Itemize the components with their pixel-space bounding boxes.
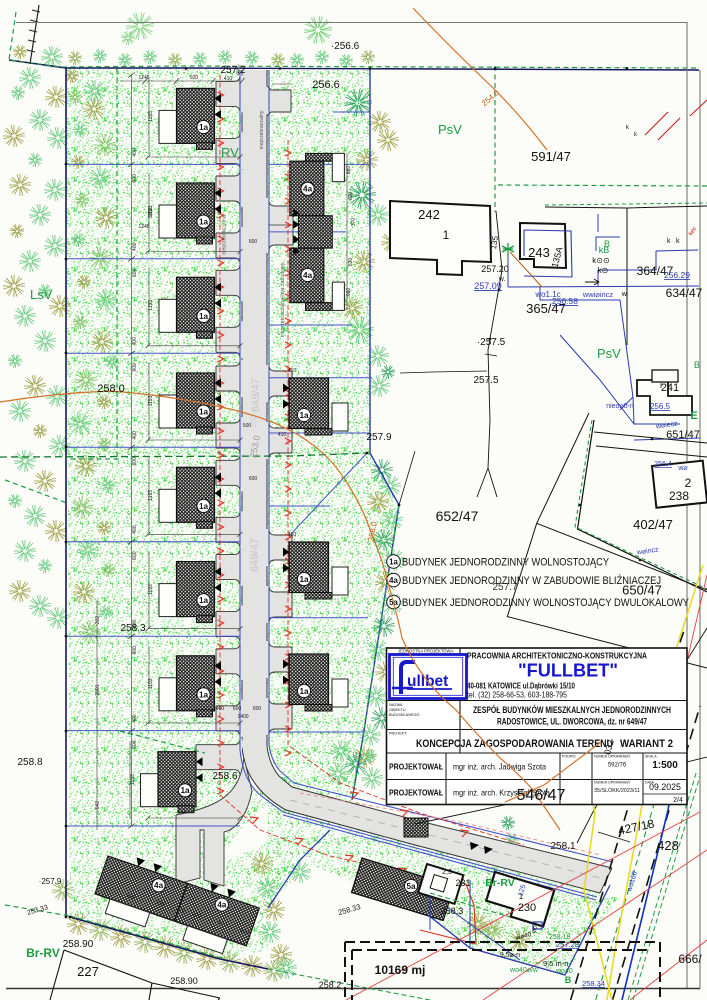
svg-text:BUDYNEK JEDNORODZINNY WOLNOSTO: BUDYNEK JEDNORODZINNY WOLNOSTOJĄCY DWULO… <box>402 597 689 609</box>
svg-text:258.34: 258.34 <box>582 979 605 988</box>
svg-text:tel. (32) 258-66-53, 603-188-7: tel. (32) 258-66-53, 603-188-795 <box>467 691 568 700</box>
svg-text:4a: 4a <box>389 576 398 585</box>
svg-text:256.29: 256.29 <box>664 270 690 280</box>
svg-text:1193: 1193 <box>130 774 136 785</box>
svg-text:243: 243 <box>528 245 550 260</box>
svg-text:1193: 1193 <box>148 584 154 595</box>
svg-text:600: 600 <box>132 551 138 560</box>
svg-text:9,5⌀-n: 9,5⌀-n <box>500 952 520 959</box>
svg-text:mgr inż. arch. Jadwiga Szota: mgr inż. arch. Jadwiga Szota <box>453 763 546 772</box>
svg-text:257.5: 257.5 <box>473 375 498 386</box>
svg-text:w⌀: w⌀ <box>677 465 687 472</box>
svg-text:410: 410 <box>288 368 297 374</box>
svg-text:258.90: 258.90 <box>170 976 198 986</box>
svg-text:400: 400 <box>132 525 138 534</box>
svg-text:546/47: 546/47 <box>517 787 566 804</box>
svg-text:231: 231 <box>455 878 470 888</box>
svg-text:660: 660 <box>346 288 352 297</box>
svg-text:40-081 KATOWICE ul.Dąbrówki 15: 40-081 KATOWICE ul.Dąbrówki 15/10 <box>467 682 576 691</box>
svg-text:302: 302 <box>95 616 101 625</box>
svg-text:"FULLBET": "FULLBET" <box>518 660 618 681</box>
svg-text:1a: 1a <box>299 687 309 696</box>
svg-text:592/76: 592/76 <box>608 763 627 769</box>
svg-text:257.09: 257.09 <box>474 281 502 291</box>
svg-text:258.3: 258.3 <box>120 623 145 634</box>
svg-text:NUMER UPRAWNIEŃ: NUMER UPRAWNIEŃ <box>594 781 630 785</box>
svg-text:nieprzekraczalny: nieprzekraczalny <box>259 110 265 149</box>
svg-text:241: 241 <box>661 382 679 394</box>
svg-text:i: i <box>660 380 662 390</box>
svg-text:PsV: PsV <box>438 122 462 137</box>
svg-text:ZESPÓŁ BUDYNKÓW MIESZKALNYCH J: ZESPÓŁ BUDYNKÓW MIESZKALNYCH JEDNORODZIN… <box>473 704 671 715</box>
svg-text:B: B <box>694 360 700 370</box>
svg-text:500: 500 <box>243 423 252 429</box>
svg-text:·256.6: ·256.6 <box>331 41 360 52</box>
svg-text:k⊙⊙: k⊙⊙ <box>592 256 609 265</box>
svg-text:35/SLOKK/2023/11: 35/SLOKK/2023/11 <box>594 788 640 794</box>
svg-text:10169 mj: 10169 mj <box>375 963 426 977</box>
svg-text:RADOSTOWICE, UL. DWORCOWA, dz.: RADOSTOWICE, UL. DWORCOWA, dz. nr 649/47 <box>497 717 647 727</box>
svg-text:k⊙: k⊙ <box>598 266 609 275</box>
svg-text:227: 227 <box>77 964 99 979</box>
svg-text:·257.9: ·257.9 <box>39 877 62 886</box>
svg-text:242: 242 <box>418 207 440 222</box>
svg-text:257.7: 257.7 <box>492 582 517 593</box>
svg-text:591/47: 591/47 <box>531 149 571 164</box>
svg-text:Br-RV: Br-RV <box>485 877 515 889</box>
svg-text:PODPIS: PODPIS <box>562 755 576 759</box>
svg-text:1a: 1a <box>199 596 209 605</box>
svg-text:Br-RV: Br-RV <box>26 946 60 960</box>
svg-text:256.4: 256.4 <box>654 461 672 468</box>
svg-text:400: 400 <box>132 431 138 440</box>
svg-text:256.58: 256.58 <box>552 296 578 306</box>
svg-text:600: 600 <box>233 706 242 712</box>
svg-text:666/: 666/ <box>678 952 702 966</box>
svg-text:258.90: 258.90 <box>63 939 94 950</box>
svg-text:370: 370 <box>351 218 357 227</box>
svg-text:09.2025: 09.2025 <box>649 782 681 792</box>
svg-text:2,3: 2,3 <box>442 869 452 876</box>
svg-text:600: 600 <box>253 706 262 712</box>
svg-text:RV: RV <box>221 145 239 160</box>
svg-text:2001: 2001 <box>95 684 101 695</box>
svg-text:1a: 1a <box>199 502 209 511</box>
svg-text:SKALA: SKALA <box>645 755 657 759</box>
svg-text:1193: 1193 <box>148 300 154 311</box>
svg-text:651/47: 651/47 <box>666 429 700 441</box>
svg-text:1a: 1a <box>180 786 190 795</box>
svg-text:634/47: 634/47 <box>666 286 703 300</box>
svg-text:PROJEKT:: PROJEKT: <box>389 732 407 736</box>
svg-text:nieo⌀0-n: nieo⌀0-n <box>606 403 634 410</box>
svg-text:620: 620 <box>348 258 354 267</box>
svg-text:600: 600 <box>132 740 138 749</box>
svg-text:600: 600 <box>132 174 138 183</box>
svg-text:wo40: wo40 <box>555 968 573 975</box>
svg-text:w.: w. <box>621 291 629 298</box>
svg-text:649/47: 649/47 <box>249 538 261 572</box>
svg-text:k: k <box>667 238 671 245</box>
svg-text:NUMER UPRAWNIEŃ: NUMER UPRAWNIEŃ <box>594 755 630 759</box>
svg-text:542: 542 <box>95 801 101 810</box>
svg-text:400: 400 <box>132 242 138 251</box>
svg-text:1a: 1a <box>299 575 309 584</box>
svg-text:652/47: 652/47 <box>436 508 479 524</box>
svg-text:PsV: PsV <box>597 346 621 361</box>
svg-text:400: 400 <box>132 714 138 723</box>
svg-text:1:500: 1:500 <box>652 760 678 771</box>
svg-text:·257.5: ·257.5 <box>477 337 506 348</box>
svg-text:650/47: 650/47 <box>622 583 662 598</box>
svg-text:WARIANT 2: WARIANT 2 <box>620 738 673 750</box>
svg-text:400: 400 <box>216 706 225 712</box>
svg-text:258.6: 258.6 <box>212 771 237 782</box>
svg-text:649/47: 649/47 <box>250 378 262 412</box>
svg-text:BUDYNEK JEDNORODZINNY WOLNOSTO: BUDYNEK JEDNORODZINNY WOLNOSTOJĄCY <box>402 557 609 569</box>
svg-text:600: 600 <box>249 239 258 245</box>
svg-text:230: 230 <box>518 902 536 914</box>
svg-text:w.: w. <box>498 276 506 283</box>
svg-text:410: 410 <box>278 432 287 438</box>
svg-text:4a: 4a <box>154 881 164 890</box>
svg-text:LsV: LsV <box>30 287 53 302</box>
svg-text:258.0: 258.0 <box>97 383 125 395</box>
svg-text:4a: 4a <box>303 185 313 194</box>
svg-text:nieprzekraczalna linia zabudow: nieprzekraczalna linia zabudowy <box>280 262 286 337</box>
svg-text:B: B <box>604 239 610 249</box>
svg-text:410: 410 <box>288 532 297 538</box>
svg-text:1193: 1193 <box>148 395 154 406</box>
svg-text:4a: 4a <box>303 271 313 280</box>
svg-text:JEDNOSTKA PROJEKTOWA:: JEDNOSTKA PROJEKTOWA: <box>398 649 454 654</box>
svg-text:wo40⌀/w: wo40⌀/w <box>509 967 539 974</box>
svg-text:k: k <box>676 238 680 245</box>
svg-text:1a: 1a <box>199 312 209 321</box>
svg-text:258.18: 258.18 <box>549 934 571 941</box>
svg-text:600: 600 <box>132 268 138 277</box>
svg-text:920: 920 <box>190 75 199 81</box>
svg-text:KONCEPCJA ZAGOSPODAROWANIA TER: KONCEPCJA ZAGOSPODAROWANIA TERENU <box>416 738 613 750</box>
svg-text:2: 2 <box>685 476 692 490</box>
svg-text:PROJEKTOWAŁ: PROJEKTOWAŁ <box>389 763 443 772</box>
svg-text:1a: 1a <box>199 690 209 699</box>
svg-text:1193: 1193 <box>148 678 154 689</box>
svg-text:1a: 1a <box>199 408 209 417</box>
svg-text:1: 1 <box>519 892 524 901</box>
svg-text:428: 428 <box>657 838 679 853</box>
svg-text:1a: 1a <box>199 123 209 132</box>
svg-text:258.8: 258.8 <box>17 757 42 768</box>
svg-text:600: 600 <box>132 646 138 655</box>
svg-text:256.6: 256.6 <box>312 79 340 91</box>
svg-text:258.2: 258.2 <box>319 980 342 990</box>
svg-text:410: 410 <box>224 76 233 82</box>
svg-text:400: 400 <box>132 148 138 157</box>
svg-text:4a: 4a <box>217 901 227 910</box>
svg-text:258.3: 258.3 <box>441 906 464 916</box>
svg-text:600: 600 <box>132 363 138 372</box>
svg-text:256.5: 256.5 <box>650 402 671 411</box>
svg-text:OBIEKTU: OBIEKTU <box>389 708 406 712</box>
svg-text:nieprzekraczalna: nieprzekraczalna <box>222 215 228 254</box>
svg-text:2/4: 2/4 <box>673 797 683 804</box>
svg-text:PROJEKTOWAŁ: PROJEKTOWAŁ <box>389 789 443 798</box>
svg-text:620: 620 <box>348 192 354 201</box>
svg-text:wwi⌀incz: wwi⌀incz <box>582 290 614 299</box>
svg-text:3652: 3652 <box>148 207 154 218</box>
svg-text:600: 600 <box>132 457 138 466</box>
svg-text:1a: 1a <box>199 218 209 227</box>
svg-text:BUDOWLANEGO:: BUDOWLANEGO: <box>389 713 420 717</box>
svg-text:1248: 1248 <box>138 75 149 81</box>
svg-text:400: 400 <box>132 337 138 346</box>
svg-text:1: 1 <box>443 228 450 242</box>
svg-text:5a: 5a <box>406 882 416 891</box>
svg-text:1248: 1248 <box>138 224 149 230</box>
svg-text:1a: 1a <box>389 558 398 567</box>
svg-text:1a: 1a <box>299 411 309 420</box>
svg-text:257.9: 257.9 <box>366 432 391 443</box>
svg-text:258.1: 258.1 <box>550 841 575 852</box>
svg-text:1400: 1400 <box>237 714 248 720</box>
svg-text:660: 660 <box>346 166 352 175</box>
svg-text:B: B <box>565 975 572 985</box>
svg-text:257.20: 257.20 <box>481 264 509 274</box>
svg-text:402/47: 402/47 <box>633 517 673 532</box>
svg-text:NAZWA: NAZWA <box>389 703 403 707</box>
svg-text:E: E <box>690 410 697 422</box>
svg-text:9,5 m-n: 9,5 m-n <box>543 959 568 968</box>
svg-text:1193: 1193 <box>148 111 154 122</box>
svg-text:238: 238 <box>669 489 689 503</box>
svg-text:1193: 1193 <box>148 490 154 501</box>
svg-text:600: 600 <box>249 476 258 482</box>
